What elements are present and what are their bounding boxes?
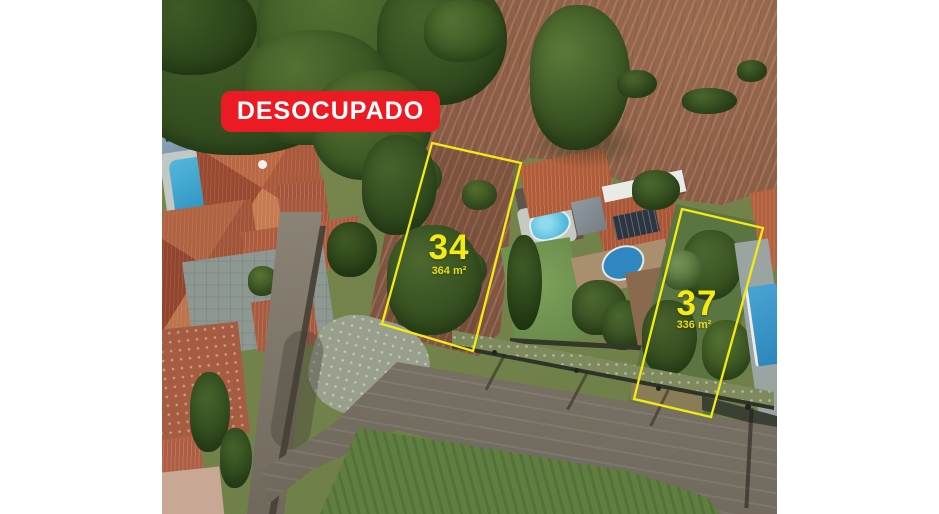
screenshot-canvas: 34 364 m² 37 336 m² DESOCUPADO [0, 0, 939, 514]
lot-34-number: 34 [414, 230, 484, 265]
utility-pole [492, 350, 497, 355]
utility-pole [656, 386, 661, 391]
gravel-yard [162, 466, 224, 514]
vacant-status-badge: DESOCUPADO [221, 91, 440, 132]
lot-34-area: 364 m² [414, 266, 484, 277]
hedge [220, 428, 252, 488]
aerial-photo: 34 364 m² 37 336 m² DESOCUPADO [162, 0, 777, 514]
tree-canopy [327, 222, 377, 277]
chimney [258, 160, 267, 169]
lot-37-area: 336 m² [659, 320, 729, 331]
lot-37-number: 37 [662, 286, 732, 321]
utility-pole [574, 368, 579, 373]
utility-pole [745, 404, 751, 410]
